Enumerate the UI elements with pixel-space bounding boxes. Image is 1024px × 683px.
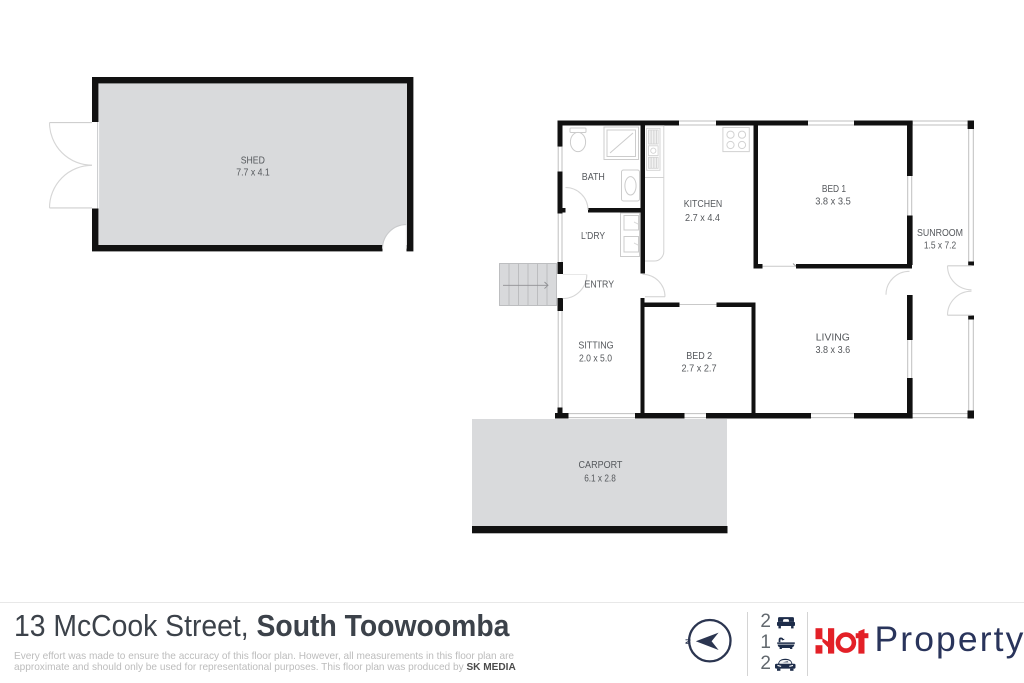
svg-text:CARPORT: CARPORT <box>579 460 623 471</box>
svg-text:SUNROOM: SUNROOM <box>917 228 963 239</box>
svg-text:KITCHEN: KITCHEN <box>684 199 723 210</box>
svg-text:2.7 x 4.4: 2.7 x 4.4 <box>685 213 720 224</box>
svg-text:2.7 x 2.7: 2.7 x 2.7 <box>681 364 716 375</box>
svg-text:3.8 x 3.6: 3.8 x 3.6 <box>815 345 850 356</box>
svg-text:BED 2: BED 2 <box>686 351 712 362</box>
svg-text:3.8 x 3.5: 3.8 x 3.5 <box>815 197 851 208</box>
svg-text:L’DRY: L’DRY <box>581 231 605 242</box>
svg-text:ENTRY: ENTRY <box>585 279 615 290</box>
svg-text:LIVING: LIVING <box>816 333 850 344</box>
svg-text:BED 1: BED 1 <box>822 184 846 195</box>
svg-text:1.5 x 7.2: 1.5 x 7.2 <box>924 240 956 251</box>
svg-text:SHED: SHED <box>241 156 265 167</box>
svg-text:BATH: BATH <box>582 172 605 183</box>
svg-text:7.7 x 4.1: 7.7 x 4.1 <box>236 167 270 178</box>
svg-text:2.0 x 5.0: 2.0 x 5.0 <box>579 354 612 365</box>
svg-text:6.1 x 2.8: 6.1 x 2.8 <box>584 474 616 485</box>
svg-text:SITTING: SITTING <box>578 341 613 352</box>
svg-text:N: N <box>684 639 693 644</box>
